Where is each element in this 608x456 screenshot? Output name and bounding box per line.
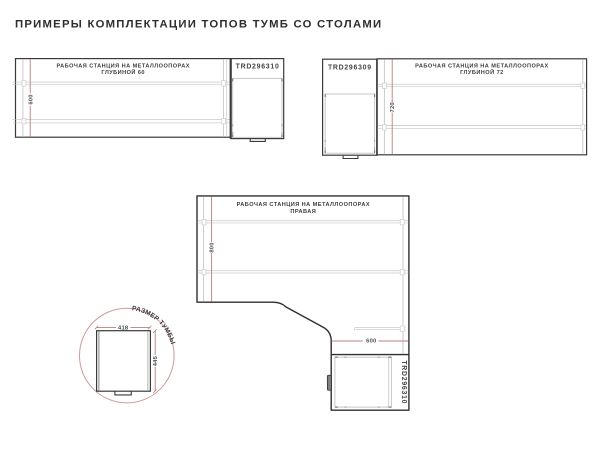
svg-text:720: 720 xyxy=(390,102,396,112)
svg-text:TRD296310: TRD296310 xyxy=(400,360,407,404)
svg-text:600: 600 xyxy=(366,339,376,345)
svg-text:ПРИМЕРЫ КОМПЛЕКТАЦИИ ТОПОВ ТУМ: ПРИМЕРЫ КОМПЛЕКТАЦИИ ТОПОВ ТУМБ СО СТОЛА… xyxy=(15,19,382,31)
svg-text:РАБОЧАЯ СТАНЦИЯ НА МЕТАЛЛООПОР: РАБОЧАЯ СТАНЦИЯ НА МЕТАЛЛООПОРАХ xyxy=(415,64,548,70)
svg-text:ГЛУБИНОЙ 60: ГЛУБИНОЙ 60 xyxy=(101,68,145,76)
svg-text:РАБОЧАЯ СТАНЦИЯ НА МЕТАЛЛООПОР: РАБОЧАЯ СТАНЦИЯ НА МЕТАЛЛООПОРАХ xyxy=(237,202,370,208)
svg-text:800: 800 xyxy=(210,242,216,252)
svg-text:TRD296310: TRD296310 xyxy=(236,63,280,70)
svg-text:600: 600 xyxy=(29,94,35,104)
svg-text:ПРАВАЯ: ПРАВАЯ xyxy=(290,209,316,215)
svg-text:РАБОЧАЯ СТАНЦИЯ НА МЕТАЛЛООПОР: РАБОЧАЯ СТАНЦИЯ НА МЕТАЛЛООПОРАХ xyxy=(56,64,189,70)
svg-text:TRD296309: TRD296309 xyxy=(328,64,372,71)
svg-text:418: 418 xyxy=(118,325,129,331)
svg-text:445: 445 xyxy=(153,355,159,366)
svg-text:ГЛУБИНОЙ 72: ГЛУБИНОЙ 72 xyxy=(460,68,504,76)
